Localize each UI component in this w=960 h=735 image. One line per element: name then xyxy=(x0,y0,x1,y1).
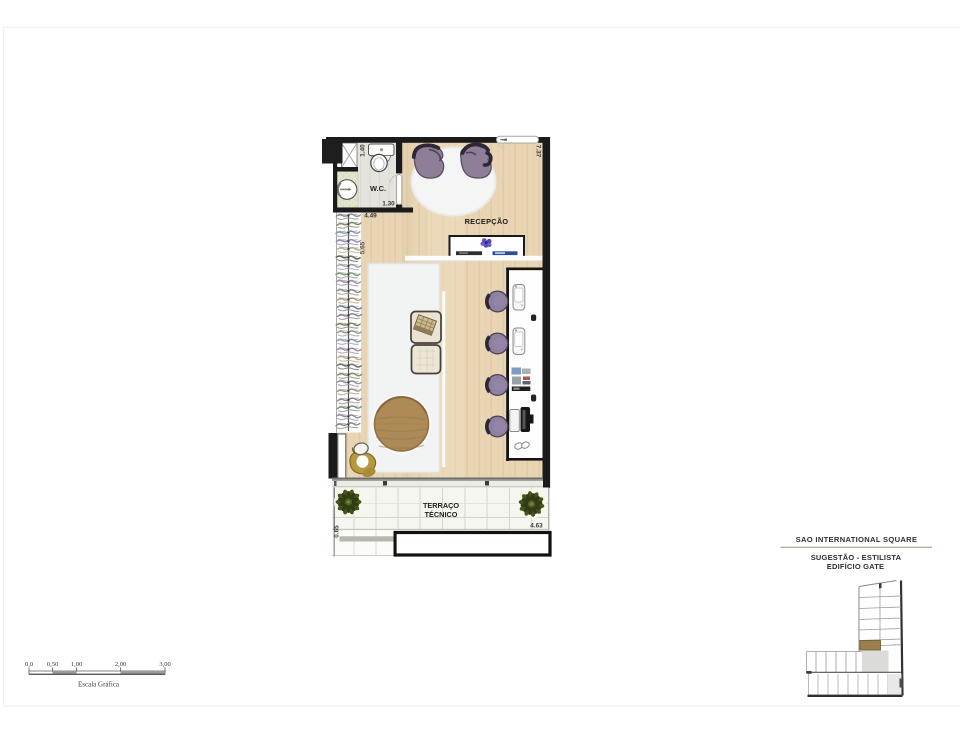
svg-text:TERRAÇO: TERRAÇO xyxy=(423,501,459,510)
svg-text:Escala Gráfica: Escala Gráfica xyxy=(78,681,120,689)
svg-text:0.65: 0.65 xyxy=(334,525,341,538)
svg-text:1.30: 1.30 xyxy=(382,200,395,207)
svg-text:1,00: 1,00 xyxy=(71,661,82,668)
svg-text:0,50: 0,50 xyxy=(47,661,58,668)
svg-text:5.65: 5.65 xyxy=(360,241,367,254)
svg-text:4.63: 4.63 xyxy=(530,523,543,530)
svg-text:2,00: 2,00 xyxy=(115,661,126,668)
svg-text:3,00: 3,00 xyxy=(159,661,170,668)
svg-text:W.C.: W.C. xyxy=(370,184,386,193)
svg-text:TÉCNICO: TÉCNICO xyxy=(425,510,458,519)
svg-text:0,0: 0,0 xyxy=(25,661,33,668)
svg-text:EDIFÍCIO GATE: EDIFÍCIO GATE xyxy=(827,562,884,571)
svg-text:SAO INTERNATIONAL SQUARE: SAO INTERNATIONAL SQUARE xyxy=(796,535,918,544)
svg-text:SUGESTÃO - ESTILISTA: SUGESTÃO - ESTILISTA xyxy=(811,553,902,562)
svg-text:7.37: 7.37 xyxy=(535,145,542,158)
svg-text:4.49: 4.49 xyxy=(364,213,377,220)
svg-text:1.40: 1.40 xyxy=(360,144,367,157)
svg-text:RECEPÇÃO: RECEPÇÃO xyxy=(465,217,509,226)
